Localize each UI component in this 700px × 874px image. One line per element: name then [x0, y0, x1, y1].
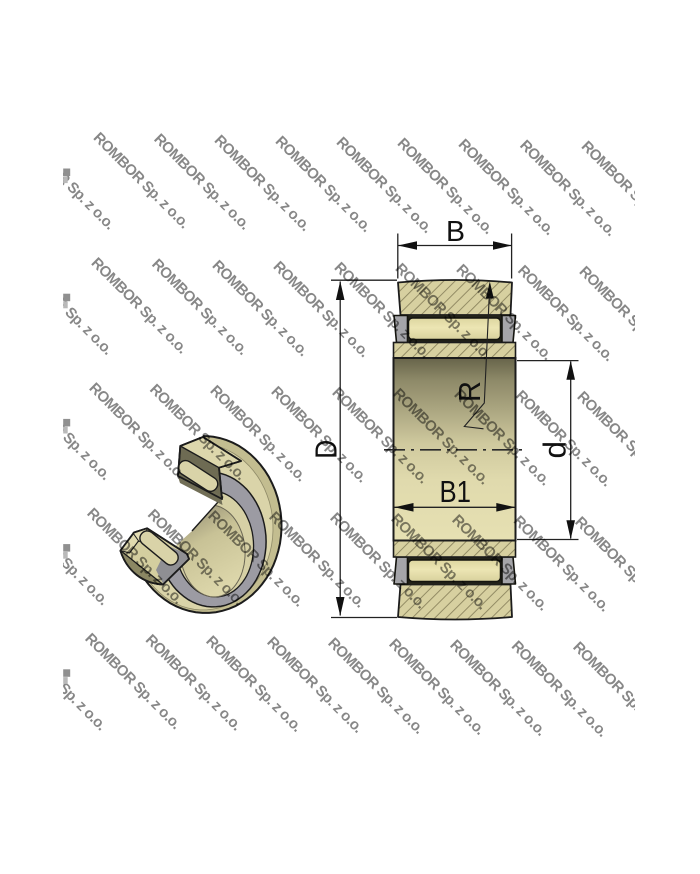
svg-text:B1: B1: [439, 474, 471, 509]
svg-text:B: B: [446, 216, 465, 248]
